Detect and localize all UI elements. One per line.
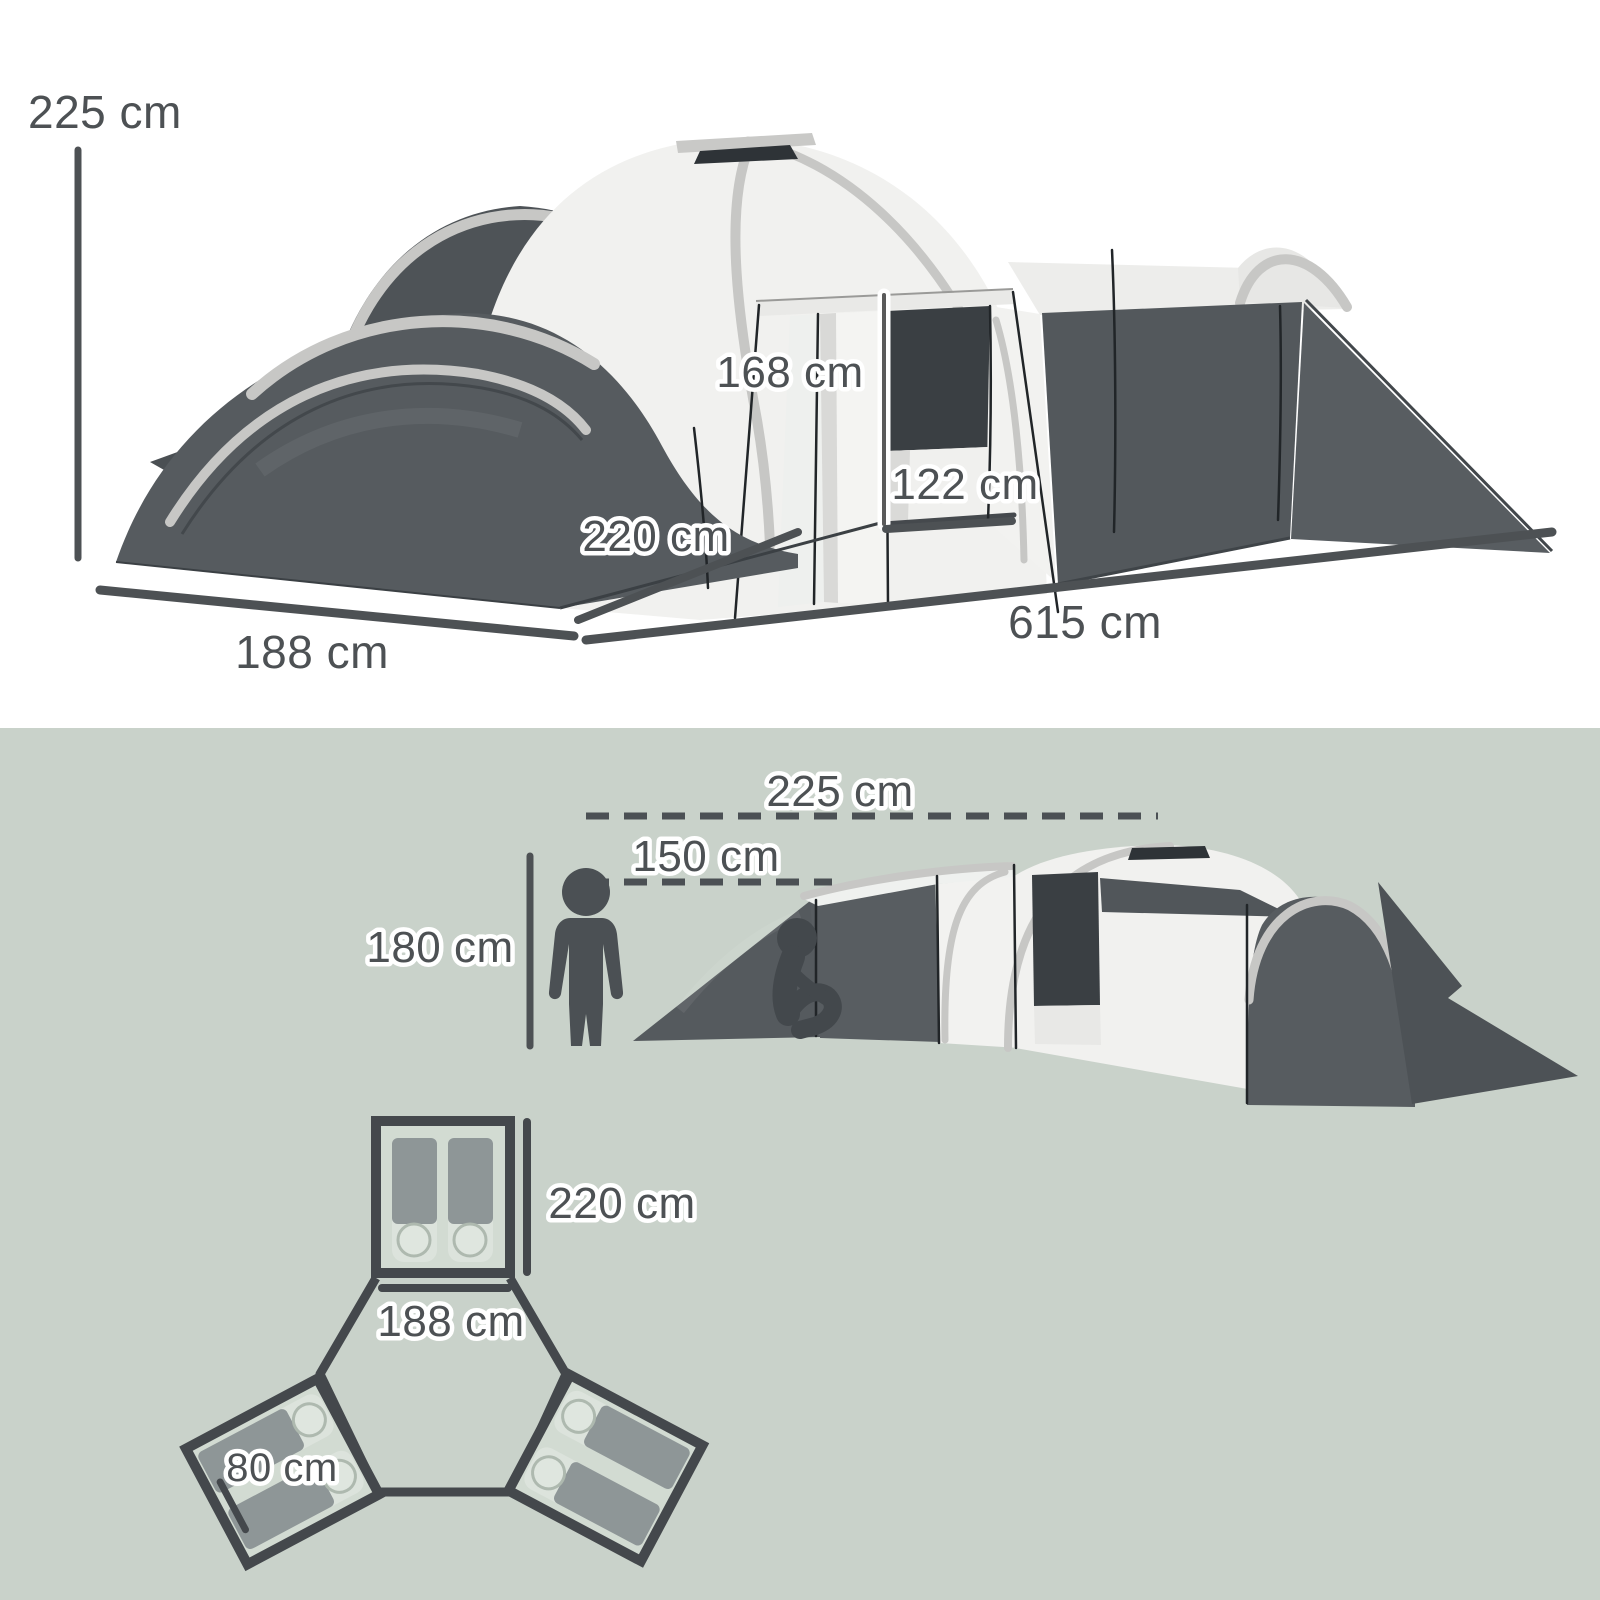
sleeping-bag-body: [448, 1138, 493, 1224]
door-width-label: 122 cm: [891, 460, 1038, 509]
bottom-diagram: 225 cm 150 cm 180 cm: [0, 728, 1600, 1600]
pod-width-label: 188 cm: [377, 1297, 524, 1346]
sleeping-bag-body: [392, 1138, 437, 1224]
sv-door-opening: [1032, 872, 1100, 1006]
pod-length-label: 220 cm: [548, 1179, 695, 1228]
front-width-label: 188 cm: [235, 626, 389, 678]
standing-person-body: [549, 918, 623, 1004]
sleeping-bag-pillow: [398, 1224, 430, 1256]
tent-dimensions-figure: 225 cm 188 cm 615 cm 220 cm 168 cm 122 c…: [0, 0, 1600, 1600]
top-diagram: 225 cm 188 cm 615 cm 220 cm 168 cm 122 c…: [28, 86, 1552, 678]
sleeping-bag: [448, 1138, 493, 1262]
peak-height-label: 225 cm: [766, 767, 913, 816]
product-dimension-image: 225 cm 188 cm 615 cm 220 cm 168 cm 122 c…: [0, 0, 1600, 1600]
sleeping-bag-pillow: [454, 1224, 486, 1256]
pod-depth-label: 220 cm: [582, 512, 729, 561]
right-window-panel: [1042, 302, 1302, 584]
door-height-label: 168 cm: [716, 348, 863, 397]
right-slope-panel: [1291, 303, 1550, 553]
door-opening: [886, 306, 990, 451]
bag-width-label: 80 cm: [226, 1446, 337, 1490]
wall-height-label: 150 cm: [632, 832, 779, 881]
standing-person-head: [562, 868, 610, 916]
sleeping-bag: [392, 1138, 437, 1262]
side-length-label: 615 cm: [1008, 596, 1162, 648]
total-height-label: 225 cm: [28, 86, 182, 138]
floor-pod-top: [376, 1121, 510, 1273]
person-height-label: 180 cm: [366, 923, 513, 972]
sv-peak-vent: [1128, 846, 1210, 860]
sv-door-floor: [1034, 1005, 1101, 1045]
